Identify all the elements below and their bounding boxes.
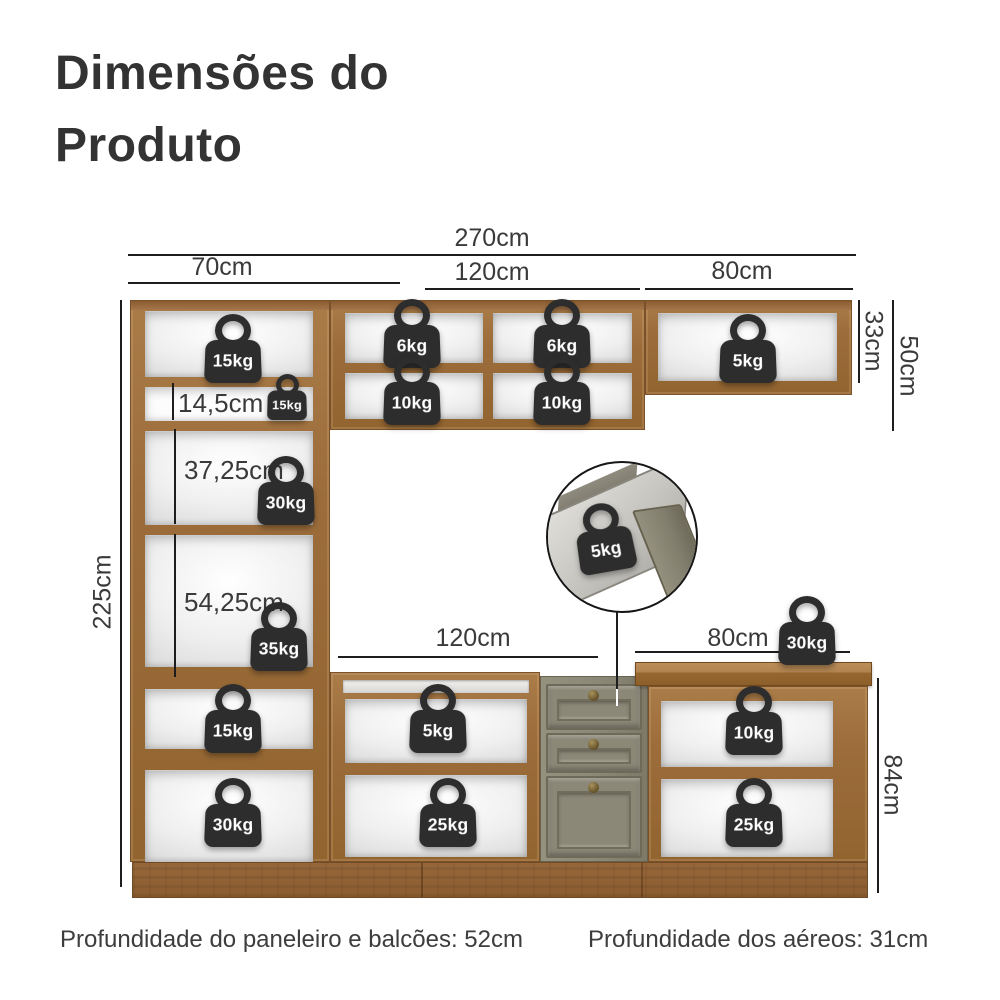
kettlebell-weight-icon: 15kg — [267, 374, 307, 420]
drawer-bottom — [546, 776, 642, 858]
weight-label: 25kg — [419, 804, 477, 847]
drawer-unit — [540, 676, 648, 862]
inset-leader-line-over-drawer — [616, 689, 618, 706]
dimension-label-aereo-height: 50cm — [894, 335, 923, 396]
kettlebell-weight-icon: 5kg — [409, 684, 467, 753]
countertop — [635, 662, 872, 686]
inset-leader-line — [616, 611, 618, 689]
page-title-line-2: Produto — [55, 110, 389, 182]
dimension-label-aereo-center-width: 120cm — [454, 258, 529, 287]
kettlebell-weight-icon: 5kg — [719, 314, 777, 383]
dimension-line-70cm — [128, 282, 400, 284]
dimension-label-total-width: 270cm — [454, 224, 529, 253]
page-title: Dimensões do Produto — [55, 38, 389, 182]
weight-label: 15kg — [204, 340, 262, 383]
weight-label: 35kg — [250, 628, 308, 671]
drawer-knob — [588, 782, 599, 793]
depth-note-paneleiro-balcoes: Profundidade do paneleiro e balcões: 52c… — [60, 926, 523, 954]
dimension-line-54-25cm — [174, 534, 176, 677]
dimension-line-120cm-bottom — [338, 656, 598, 658]
drawer-knob — [588, 739, 599, 750]
page-title-line-1: Dimensões do — [55, 38, 389, 110]
dimension-line-120cm-top — [425, 288, 640, 290]
depth-note-aereos: Profundidade dos aéreos: 31cm — [588, 926, 928, 954]
kettlebell-weight-icon: 10kg — [533, 356, 591, 425]
cabinet-top-edge — [131, 301, 329, 310]
kettlebell-weight-icon: 10kg — [383, 356, 441, 425]
dimension-label-paneleiro-height: 225cm — [89, 554, 118, 629]
drawer-middle — [546, 733, 642, 773]
product-dimensions-diagram: Dimensões do Produto — [0, 0, 1000, 1000]
weight-label: 15kg — [267, 390, 307, 420]
weight-label: 10kg — [383, 382, 441, 425]
weight-label: 10kg — [533, 382, 591, 425]
drawer-panel — [557, 699, 631, 721]
kettlebell-weight-icon: 35kg — [250, 602, 308, 671]
weight-label: 10kg — [725, 712, 783, 755]
kettlebell-weight-icon: 30kg — [778, 596, 836, 665]
weight-label: 25kg — [725, 804, 783, 847]
plinth-seam — [641, 863, 643, 897]
weight-label: 15kg — [204, 710, 262, 753]
kettlebell-weight-icon: 25kg — [725, 778, 783, 847]
drawer-knob — [588, 690, 599, 701]
drawer-top — [546, 684, 642, 730]
kettlebell-weight-icon: 15kg — [204, 684, 262, 753]
plinth-base — [132, 862, 868, 898]
kettlebell-weight-icon: 25kg — [419, 778, 477, 847]
dimension-label-balcao-center-width: 120cm — [435, 624, 510, 653]
weight-label: 30kg — [778, 622, 836, 665]
drawer-panel — [557, 748, 631, 764]
weight-label: 5kg — [409, 710, 467, 753]
weight-label: 5kg — [719, 340, 777, 383]
dimension-label-aereo-right-height: 33cm — [859, 310, 888, 371]
drawer-detail-inset: 5kg — [546, 461, 698, 613]
dimension-label-nicho-small: 14,5cm — [178, 388, 263, 419]
dimension-line-80cm-top — [645, 288, 853, 290]
dimension-line-37-25cm — [174, 429, 176, 524]
weight-label: 30kg — [257, 482, 315, 525]
dimension-label-balcao-height: 84cm — [878, 754, 907, 815]
kettlebell-weight-icon: 10kg — [725, 686, 783, 755]
dimension-line-225cm — [120, 300, 122, 887]
kettlebell-weight-icon: 30kg — [204, 778, 262, 847]
drawer-panel — [557, 791, 631, 849]
kettlebell-weight-icon: 15kg — [204, 314, 262, 383]
weight-label: 30kg — [204, 804, 262, 847]
cabinet-top-edge — [646, 301, 851, 310]
upper-cabinet-center — [330, 300, 645, 430]
dimension-label-aereo-right-width: 80cm — [711, 257, 772, 286]
kettlebell-weight-icon: 30kg — [257, 456, 315, 525]
dimension-label-paneleiro-width: 70cm — [191, 253, 252, 282]
dimension-line-14-5cm — [172, 383, 174, 420]
dimension-label-balcao-right-width: 80cm — [707, 624, 768, 653]
plinth-seam — [421, 863, 423, 897]
kettlebell-weight-icon: 5kg — [569, 498, 638, 576]
cabinet-top-edge — [331, 301, 644, 310]
